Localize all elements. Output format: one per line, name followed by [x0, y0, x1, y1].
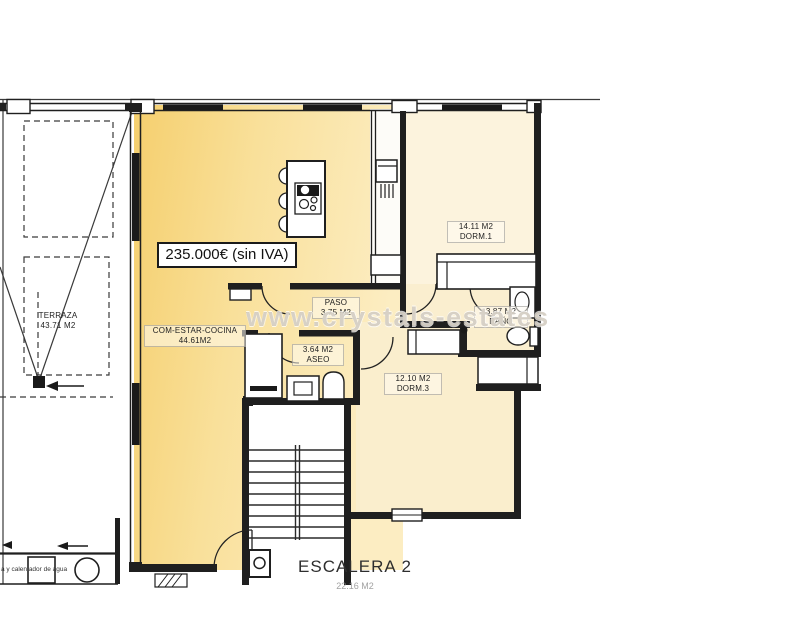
- room-name: ASEO: [295, 355, 341, 365]
- price-tag: 235.000€ (sin IVA): [157, 242, 297, 268]
- room-area: 3.64 M2: [303, 345, 333, 354]
- sightline-diagonal: [39, 109, 133, 381]
- wall: [290, 283, 406, 290]
- toilet-symbol: [530, 327, 538, 346]
- pergola-dashed-rect: [24, 121, 113, 237]
- burner-icon: [311, 206, 316, 211]
- wall: [242, 405, 249, 585]
- wall: [299, 330, 360, 337]
- utility-note: a y calentador de agua: [1, 566, 116, 573]
- room-area: 3.87 M2: [486, 307, 516, 316]
- kitchen-island: [279, 161, 325, 237]
- cupboard-symbol: [230, 289, 251, 300]
- toilet-symbol: [323, 372, 344, 399]
- terrace-symbols: [2, 376, 88, 550]
- wall: [115, 518, 120, 584]
- room-area: 44.61M2: [147, 336, 243, 346]
- wardrobe-symbol: [478, 357, 538, 384]
- island-counter: [287, 161, 325, 237]
- room-name: BAÑO: [477, 317, 525, 327]
- room-name: PASO: [325, 298, 347, 307]
- room-label-escalera: ESCALERA 2: [275, 557, 435, 577]
- window-glazing: [132, 153, 140, 241]
- utility-strip: [0, 518, 120, 584]
- shower-drain: [250, 386, 277, 391]
- window-frame: [392, 101, 417, 113]
- window-glazing: [303, 105, 362, 111]
- burner-icon: [300, 200, 309, 209]
- room-area: 3.75 M2: [315, 308, 357, 318]
- wall: [400, 321, 470, 328]
- room-area: 12.10 M2: [396, 374, 431, 383]
- apartment-entry-door: [249, 550, 270, 577]
- wall: [534, 103, 541, 357]
- window-glazing: [163, 105, 223, 111]
- room-label-aseo: 3.64 M2 ASEO: [292, 344, 344, 366]
- toilet-symbol: [507, 327, 529, 345]
- wall: [353, 330, 360, 405]
- room-label-terraza: TERRAZA 43.71 M2: [28, 311, 88, 331]
- wall: [458, 350, 541, 357]
- wall-corner: [129, 103, 142, 112]
- door-hinge-dot: [461, 327, 468, 334]
- burner-icon: [311, 197, 317, 203]
- window-glazing: [442, 105, 502, 111]
- sink-symbol: [376, 160, 397, 182]
- arrowhead-icon: [46, 381, 58, 391]
- door-knob-icon: [254, 558, 265, 569]
- floorplan-screenshot: TERRAZA 43.71 M2 235.000€ (sin IVA) COM-…: [0, 0, 800, 640]
- room-name: COM-ESTAR-COCINA: [153, 326, 237, 335]
- window-glazing: [132, 383, 140, 445]
- room-area-escalera: 22.16 M2: [275, 581, 435, 591]
- arrowhead-icon: [57, 542, 68, 550]
- room-label-living: COM-ESTAR-COCINA 44.61M2: [144, 325, 246, 347]
- wall: [476, 384, 541, 391]
- room-label-paso: PASO 3.75 M2: [312, 297, 360, 319]
- room-name: DORM.1: [450, 232, 502, 242]
- room-label-bano: 3.87 M2 BAÑO: [474, 306, 528, 328]
- sink-symbol: [287, 376, 319, 401]
- appliance-symbol: [371, 255, 401, 275]
- room-area: 14.11 M2: [459, 222, 493, 231]
- window-frame: [7, 100, 30, 114]
- wall: [514, 389, 521, 519]
- room-name: DORM.3: [387, 384, 439, 394]
- room-label-dorm1: 14.11 M2 DORM.1: [447, 221, 505, 243]
- burner-icon: [301, 186, 309, 194]
- room-label-dorm3: 12.10 M2 DORM.3: [384, 373, 442, 395]
- wall: [129, 564, 217, 572]
- wall: [345, 512, 521, 519]
- wall-post: [0, 103, 6, 111]
- wardrobe-symbol: [478, 357, 538, 384]
- bed-symbol: [437, 254, 536, 289]
- corner-marker: [33, 376, 45, 388]
- dorm1-furniture: [437, 254, 536, 289]
- room-area: 43.71 M2: [28, 321, 88, 331]
- floorplan-drawing: [0, 0, 800, 640]
- room-name: TERRAZA: [39, 311, 78, 320]
